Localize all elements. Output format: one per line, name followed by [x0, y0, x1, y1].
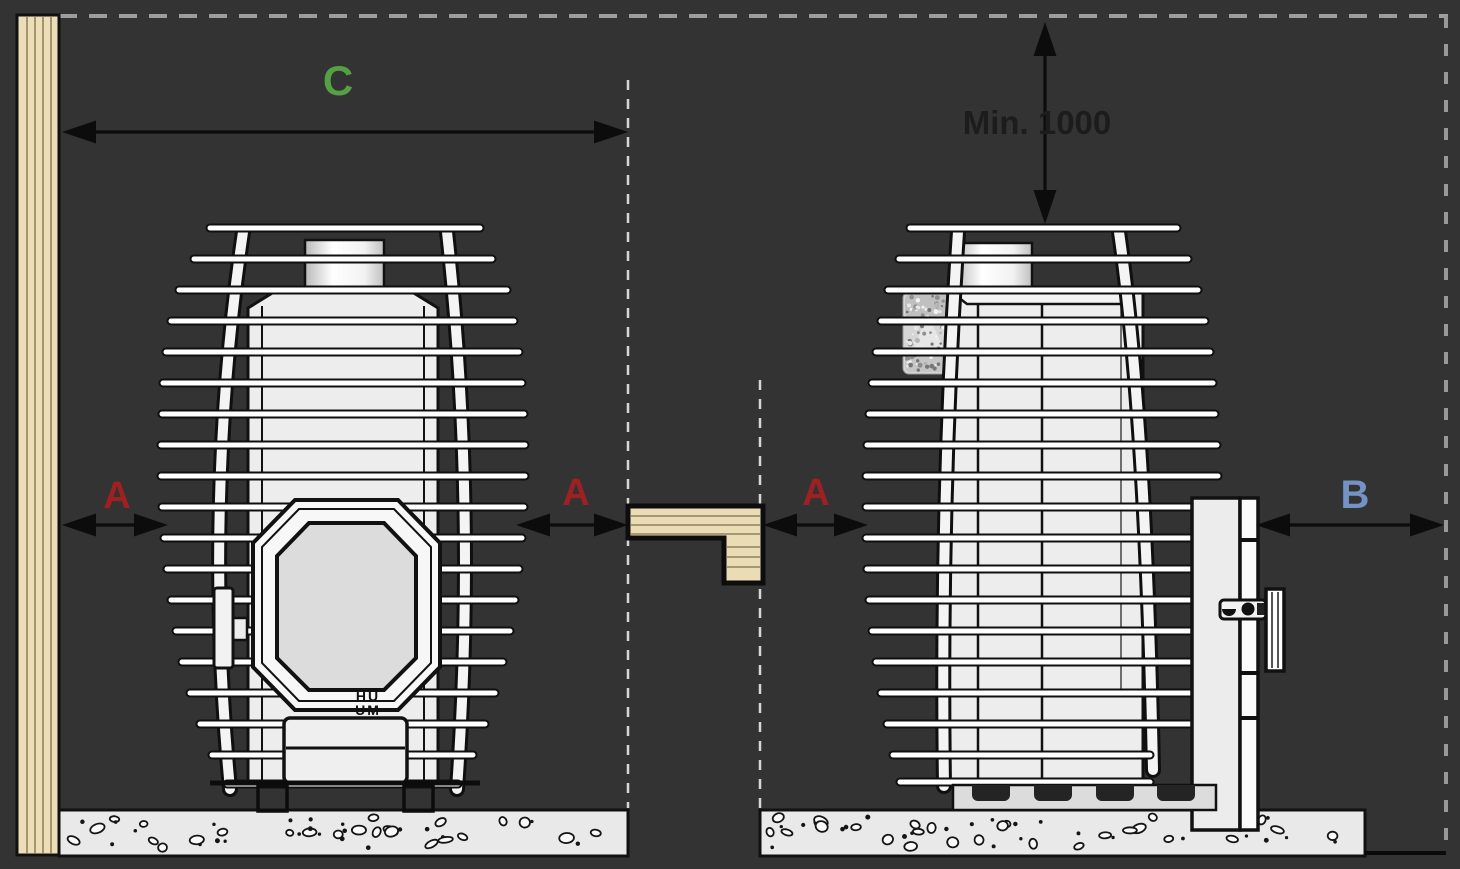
stone-speckle: [939, 310, 942, 313]
stone-speckle: [916, 363, 918, 365]
concrete-pebble: [590, 829, 601, 837]
concrete-dot: [366, 845, 371, 850]
concrete-dot: [134, 829, 138, 833]
concrete-dot: [1019, 837, 1022, 840]
concrete-dot: [1245, 834, 1248, 837]
concrete-dot: [1111, 836, 1114, 839]
concrete-dot: [1013, 822, 1017, 826]
stone-speckle: [931, 295, 934, 298]
concrete-dot: [318, 832, 321, 835]
concrete-pebble: [851, 824, 861, 831]
concrete-dot: [1285, 836, 1288, 839]
stone-speckle: [916, 305, 919, 308]
concrete-pebble: [140, 821, 148, 827]
stove-door: [253, 500, 440, 710]
stone-speckle: [929, 364, 934, 369]
concrete-dot: [80, 820, 84, 824]
stone-speckle: [914, 326, 919, 331]
label-dim-c: C: [323, 57, 353, 104]
concrete-dot: [297, 832, 301, 836]
stone-speckle: [912, 308, 916, 312]
stone-speckle: [912, 333, 914, 335]
stone-speckle: [927, 308, 931, 312]
door-glass: [277, 523, 416, 690]
concrete-dot: [902, 834, 907, 839]
stone-speckle: [922, 306, 925, 309]
concrete-dot: [342, 829, 346, 833]
stove-pedestal: [953, 785, 1216, 810]
stone-speckle: [915, 338, 920, 343]
concrete-dot: [1181, 837, 1185, 841]
stone-speckle: [939, 342, 941, 344]
clearance-diagram-svg: HU UM: [0, 0, 1460, 869]
stone-speckle: [939, 332, 942, 335]
stone-speckle: [936, 340, 938, 342]
concrete-dot: [308, 826, 313, 831]
stone-speckle: [916, 298, 920, 302]
stone-speckle: [906, 365, 909, 368]
stone-speckle: [909, 360, 912, 363]
concrete-dot: [340, 836, 345, 841]
concrete-dot: [309, 817, 313, 821]
stone-speckle: [925, 365, 929, 369]
stone-speckle: [942, 300, 945, 303]
concrete-dot: [212, 823, 215, 826]
concrete-dot: [1264, 838, 1269, 843]
concrete-dot: [865, 815, 870, 820]
concrete-pebble: [519, 817, 530, 828]
label-min-1000: Min. 1000: [963, 104, 1112, 141]
stone-speckle: [916, 359, 919, 362]
concrete-dot: [576, 841, 580, 845]
concrete-dot: [944, 827, 948, 831]
stone-speckle: [930, 343, 933, 346]
huum-logo-line2: UM: [355, 702, 381, 718]
label-dim-a-mid: A: [562, 472, 589, 514]
stone-speckle: [924, 308, 927, 311]
stone-speckle: [908, 363, 913, 368]
stone-speckle: [905, 356, 910, 361]
stone-speckle: [935, 303, 939, 307]
concrete-dot: [844, 825, 849, 830]
stone-speckle: [935, 335, 938, 338]
concrete-pebble: [1099, 832, 1111, 839]
concrete-dot: [991, 818, 995, 822]
chimney-collar-side: [955, 243, 1032, 287]
stone-speckle: [933, 309, 938, 314]
concrete-dot: [215, 838, 220, 843]
diagram-canvas: HU UM: [0, 0, 1460, 869]
concrete-pebble: [352, 826, 366, 835]
stone-speckle: [937, 362, 941, 366]
label-dim-a-right: A: [802, 472, 829, 514]
concrete-pad-right: [760, 810, 1365, 856]
stone-speckle: [935, 301, 937, 303]
stone-speckle: [935, 295, 940, 300]
stone-speckle: [917, 331, 920, 334]
concrete-dot: [425, 827, 430, 832]
concrete-dot: [970, 822, 974, 826]
stone-speckle: [906, 311, 909, 314]
huum-logo: HU UM: [355, 688, 381, 718]
concrete-pebble: [1327, 831, 1337, 840]
stone-speckle: [929, 331, 932, 334]
concrete-dot: [114, 820, 118, 824]
stone-speckle: [909, 295, 913, 299]
concrete-dot: [1039, 820, 1043, 824]
label-dim-a-left: A: [103, 475, 130, 517]
concrete-dot: [1333, 840, 1337, 844]
concrete-pebble: [927, 822, 936, 833]
concrete-pebble: [1029, 838, 1038, 849]
stone-speckle: [922, 332, 926, 336]
stone-speckle: [908, 341, 913, 346]
ash-drawer: [284, 718, 407, 783]
concrete-dot: [992, 844, 996, 848]
label-dim-b: B: [1341, 473, 1370, 517]
stone-speckle: [917, 368, 920, 371]
stone-speckle: [941, 305, 943, 307]
concrete-dot: [223, 840, 226, 843]
concrete-pebble: [1164, 835, 1174, 843]
concrete-pebble: [904, 841, 918, 851]
wooden-wall: [17, 15, 59, 855]
concrete-pebble: [1123, 827, 1137, 833]
concrete-pebble: [189, 835, 204, 845]
stone-speckle: [906, 341, 908, 343]
concrete-pebble: [559, 832, 575, 843]
concrete-pebble: [285, 829, 293, 836]
concrete-dot: [341, 823, 344, 826]
concrete-pebble: [157, 843, 167, 853]
concrete-dot: [1077, 831, 1081, 835]
concrete-dot: [780, 825, 783, 828]
concrete-pebble: [946, 836, 959, 848]
concrete-pebble: [913, 828, 924, 834]
side-panel: [1192, 498, 1258, 830]
concrete-dot: [110, 842, 114, 846]
stone-speckle: [918, 363, 923, 368]
concrete-pad-left: [59, 810, 628, 856]
stone-speckle: [935, 364, 937, 366]
concrete-dot: [770, 846, 774, 850]
stone-speckle: [907, 303, 911, 307]
stone-speckle: [920, 343, 924, 347]
concrete-dot: [288, 818, 292, 822]
concrete-pebble: [368, 814, 379, 822]
concrete-dot: [801, 823, 805, 827]
